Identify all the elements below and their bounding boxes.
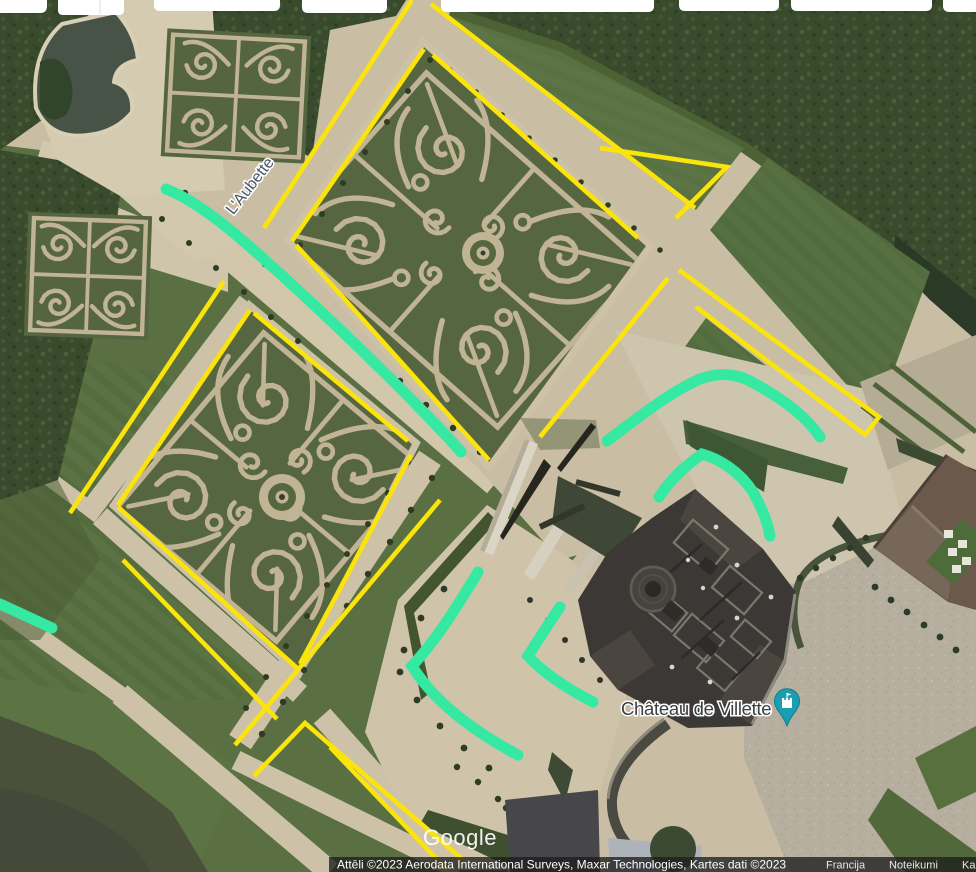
svg-text:Google: Google bbox=[423, 825, 497, 850]
svg-text:Ka: Ka bbox=[962, 860, 976, 872]
svg-text:Attēli ©2023 Aerodata Internat: Attēli ©2023 Aerodata International Surv… bbox=[337, 858, 786, 872]
svg-text:Château de Villette: Château de Villette bbox=[621, 698, 771, 719]
svg-text:Francija: Francija bbox=[826, 860, 866, 872]
svg-text:Noteikumi: Noteikumi bbox=[889, 860, 938, 872]
